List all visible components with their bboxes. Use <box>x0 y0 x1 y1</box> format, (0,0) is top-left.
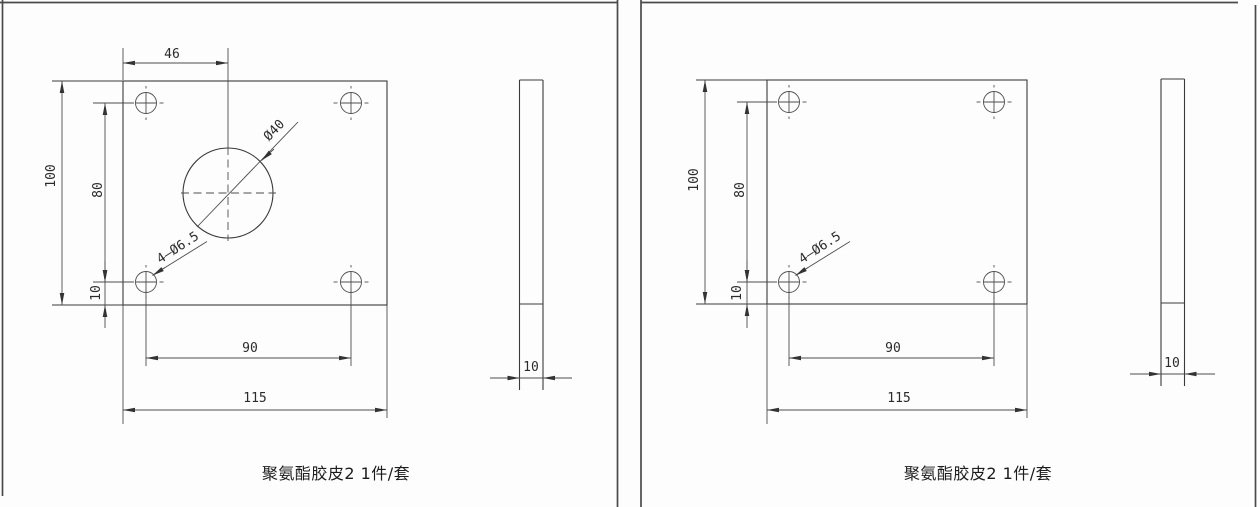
dim-label: 115 <box>243 391 266 406</box>
dim-label: 10 <box>1164 356 1180 371</box>
bolt-holes <box>772 85 1012 299</box>
leader-arrow <box>153 268 166 276</box>
dim-label: 46 <box>164 47 180 62</box>
dim-label: 115 <box>887 391 910 406</box>
dim-hole-span-x: 90 <box>146 289 351 366</box>
dim-label: 80 <box>733 182 748 198</box>
hole-callout-label: 4—Ø6.5 <box>796 229 844 267</box>
left-side-view: 10 <box>490 80 572 390</box>
dim-bottom-margin: 10 <box>89 261 105 328</box>
right-side-view: 10 <box>1130 79 1215 386</box>
plate-outline <box>767 80 1027 304</box>
dim-label: 100 <box>687 168 702 191</box>
leader-line <box>197 122 298 227</box>
dim-bottom-margin: 10 <box>730 261 747 328</box>
dim-label: 10 <box>730 285 745 301</box>
dim-label: 100 <box>44 164 59 187</box>
right-front-view: 100 80 10 4—Ø6.5 90 <box>687 80 1052 483</box>
dim-hole-span-y: 80 <box>733 102 777 282</box>
dim-label: 10 <box>523 360 539 375</box>
part-caption: 聚氨酯胶皮2 1件/套 <box>904 464 1052 483</box>
dim-label: 80 <box>91 182 106 198</box>
plate-outline <box>123 81 387 305</box>
hole-marker <box>334 86 369 120</box>
dim-width: 115 <box>123 305 387 424</box>
leader-arrow <box>262 149 275 161</box>
dim-width: 115 <box>767 304 1027 424</box>
dim-height: 100 <box>44 81 62 305</box>
dim-label: 10 <box>89 285 104 301</box>
dim-thickness: 10 <box>490 360 572 378</box>
dim-thickness: 10 <box>1130 356 1215 374</box>
drawing-sheet: Ø40 46 100 80 10 <box>0 0 1260 507</box>
dim-hole-span-y: 80 <box>91 103 134 282</box>
engineering-drawing-canvas: Ø40 46 100 80 10 <box>0 0 1260 507</box>
part-caption: 聚氨酯胶皮2 1件/套 <box>262 464 410 483</box>
leader-arrow <box>796 268 809 276</box>
dim-label: 90 <box>885 341 901 356</box>
hole-callout: 4—Ø6.5 <box>796 229 851 276</box>
hole-callout: 4—Ø6.5 <box>153 229 208 276</box>
dim-label: 90 <box>242 341 258 356</box>
dim-hole-span-x: 90 <box>789 289 994 366</box>
dim-hole-offset-x: 46 <box>123 47 228 148</box>
bolt-holes <box>129 86 369 299</box>
hole-marker <box>977 85 1012 119</box>
dim-height: 100 <box>687 80 705 304</box>
left-front-view: Ø40 46 100 80 10 <box>44 47 410 483</box>
hole-callout-label: 4—Ø6.5 <box>154 229 202 267</box>
center-hole-diameter-label: Ø40 <box>261 117 288 144</box>
